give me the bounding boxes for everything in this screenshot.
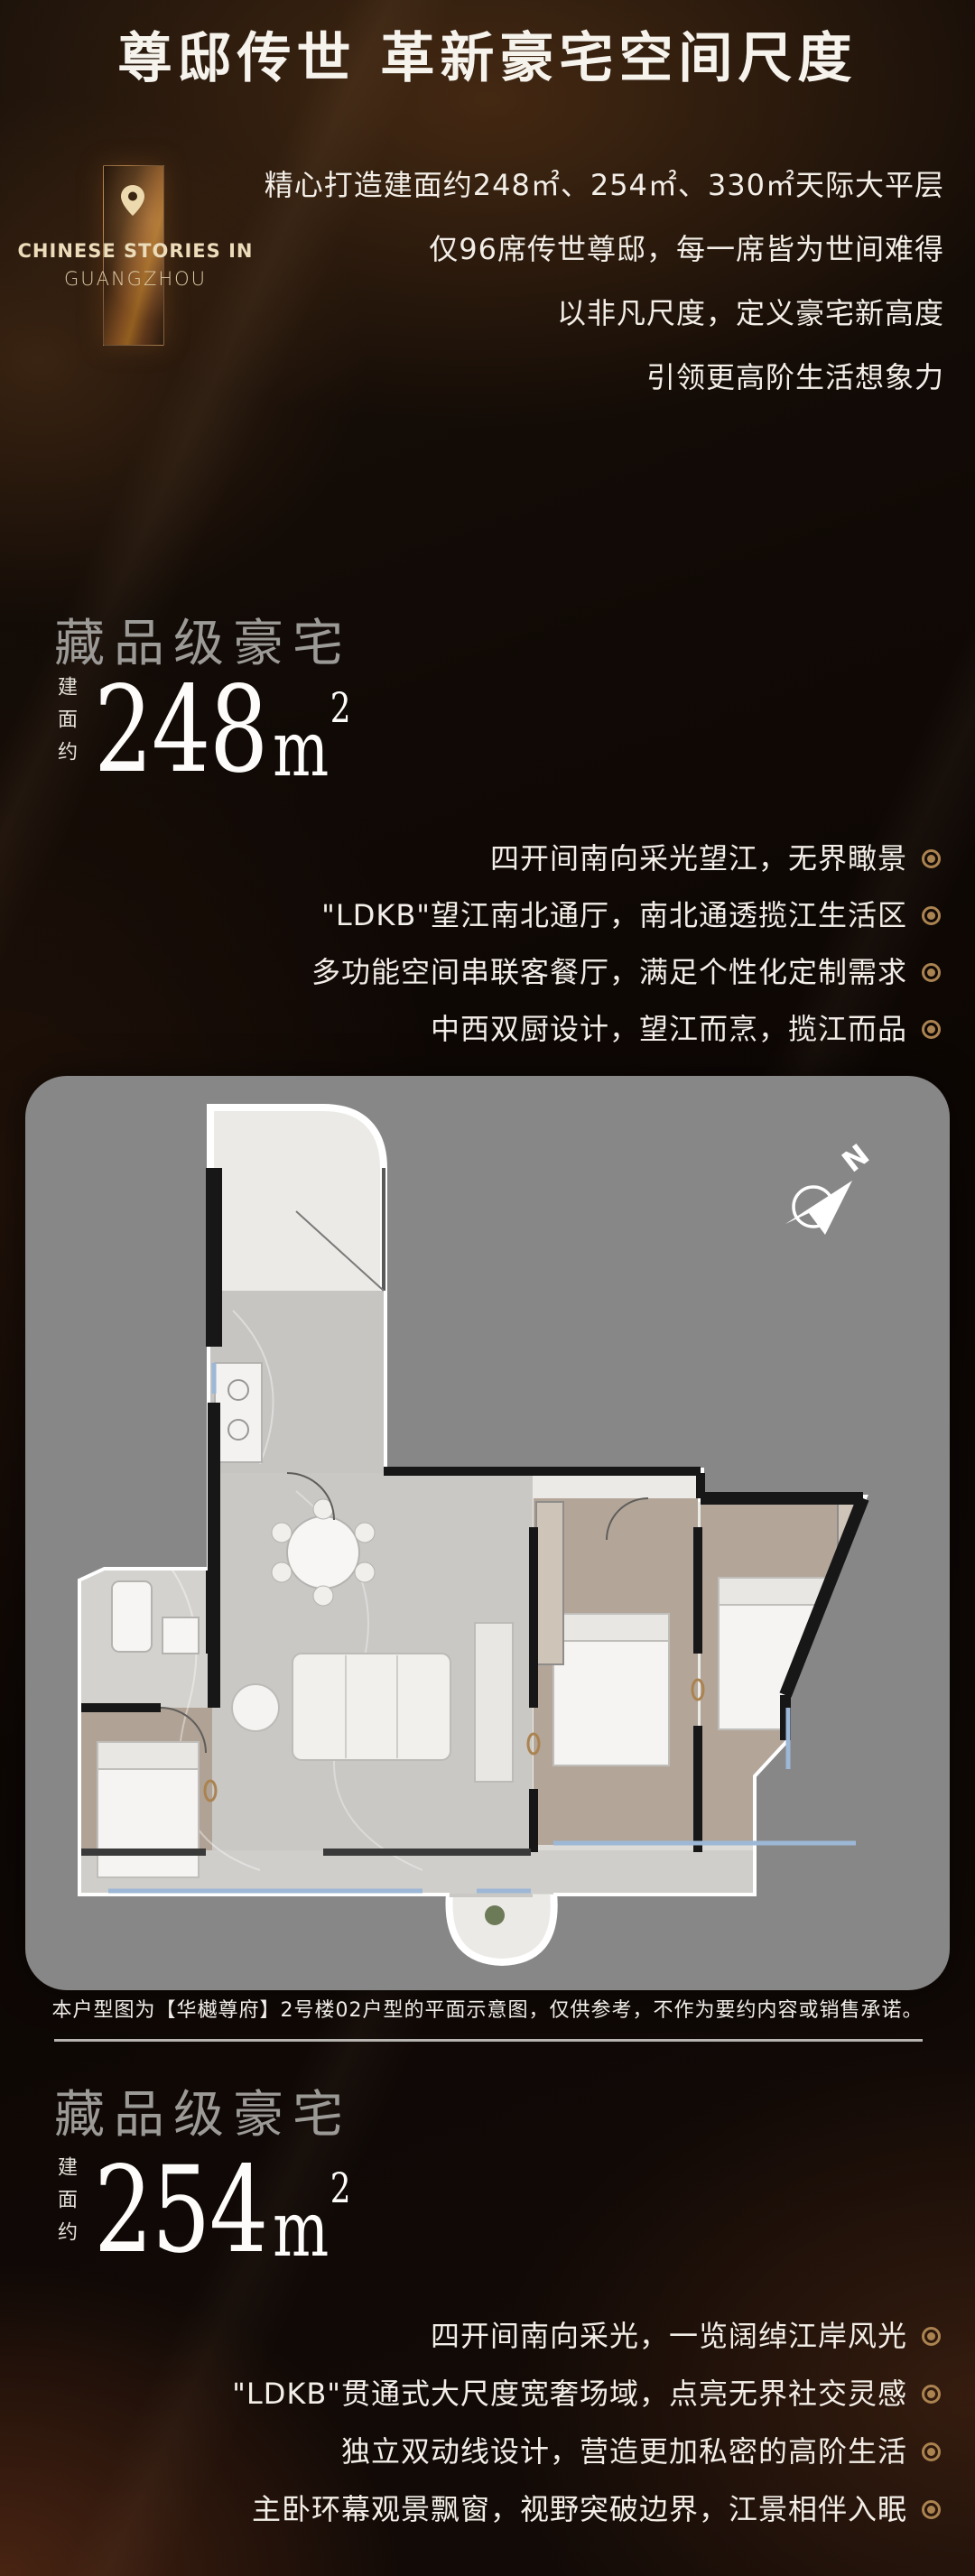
plan-rooms xyxy=(81,1291,868,1932)
feature-text: "LDKB"望江南北通厅，南北通透揽江生活区 xyxy=(321,895,907,935)
area-unit: m xyxy=(273,2201,329,2259)
feature-row: "LDKB"贯通式大尺度宽奢场域，点亮无界社交灵感 xyxy=(232,2374,941,2414)
badge-line1: CHINESE STORIES IN xyxy=(4,240,267,262)
feature-text: 四开间南向采光，一览阔绰江岸风光 xyxy=(431,2316,907,2356)
feature-row: 独立双动线设计，营造更加私密的高阶生活 xyxy=(341,2432,941,2471)
target-ring-icon xyxy=(922,963,941,982)
area-label-vertical: 建面约 xyxy=(51,2156,79,2259)
feature-row: "LDKB"望江南北通厅，南北通透揽江生活区 xyxy=(321,895,941,935)
feature-row: 多功能空间串联客餐厅，满足个性化定制需求 xyxy=(311,952,941,992)
poster-page: 尊邸传世 革新豪宅空间尺度 CHINESE STORIES IN GUANGZH… xyxy=(0,0,975,2576)
feature-text: 主卧环幕观景飘窗，视野突破边界，江景相伴入眠 xyxy=(252,2489,907,2529)
intro-line-3: 以非凡尺度，定义豪宅新高度 xyxy=(557,293,944,333)
target-ring-icon xyxy=(922,906,941,925)
feature-text: 四开间南向采光望江，无界瞰景 xyxy=(490,839,907,878)
area-unit: m xyxy=(273,721,329,779)
feature-text: 中西双厨设计，望江而烹，揽江而品 xyxy=(431,1009,907,1049)
compass-label: N xyxy=(836,1137,876,1179)
feature-row: 中西双厨设计，望江而烹，揽江而品 xyxy=(431,1009,941,1049)
brand-badge-text: CHINESE STORIES IN GUANGZHOU xyxy=(4,240,267,290)
area-value: 248 xyxy=(94,683,267,779)
intro-line-2: 仅96席传世尊邸，每一席皆为世间难得 xyxy=(429,229,944,269)
section1-area: 建面约 248 m 2 xyxy=(51,672,423,779)
area-number: 248 m 2 xyxy=(94,683,351,779)
compass-north-icon: N xyxy=(785,1137,876,1235)
intro-line-1: 精心打造建面约248㎡、254㎡、330㎡天际大平层 xyxy=(265,165,944,205)
feature-text: "LDKB"贯通式大尺度宽奢场域，点亮无界社交灵感 xyxy=(232,2374,907,2414)
feature-text: 多功能空间串联客餐厅，满足个性化定制需求 xyxy=(311,952,907,992)
feature-row: 主卧环幕观景飘窗，视野突破边界，江景相伴入眠 xyxy=(252,2489,941,2529)
area-value: 254 xyxy=(94,2164,267,2259)
section-divider xyxy=(54,2039,923,2042)
target-ring-icon xyxy=(922,2385,941,2404)
location-pin-icon xyxy=(121,185,144,216)
page-title: 尊邸传世 革新豪宅空间尺度 xyxy=(0,14,975,93)
floorplan-drawing: N xyxy=(25,1076,950,1990)
badge-line2: GUANGZHOU xyxy=(4,268,267,290)
intro-line-4: 引领更高阶生活想象力 xyxy=(646,357,944,397)
feature-text: 独立双动线设计，营造更加私密的高阶生活 xyxy=(341,2432,907,2471)
section2-heading: 藏品级豪宅 xyxy=(54,2074,352,2147)
floorplan-caption: 本户型图为【华樾尊府】2号楼02户型的平面示意图，仅供参考，不作为要约内容或销售… xyxy=(0,1994,975,2023)
feature-row: 四开间南向采光望江，无界瞰景 xyxy=(490,839,941,878)
feature-row: 四开间南向采光，一览阔绰江岸风光 xyxy=(431,2316,941,2356)
area-label-vertical: 建面约 xyxy=(51,676,79,779)
section2-area: 建面约 254 m 2 xyxy=(51,2153,423,2259)
floorplan-card: N xyxy=(25,1076,950,1990)
target-ring-icon xyxy=(922,2327,941,2346)
area-exponent: 2 xyxy=(330,2167,351,2209)
target-ring-icon xyxy=(922,2500,941,2519)
target-ring-icon xyxy=(922,1020,941,1039)
target-ring-icon xyxy=(922,849,941,868)
area-exponent: 2 xyxy=(330,687,351,728)
area-number: 254 m 2 xyxy=(94,2164,351,2259)
target-ring-icon xyxy=(922,2442,941,2461)
